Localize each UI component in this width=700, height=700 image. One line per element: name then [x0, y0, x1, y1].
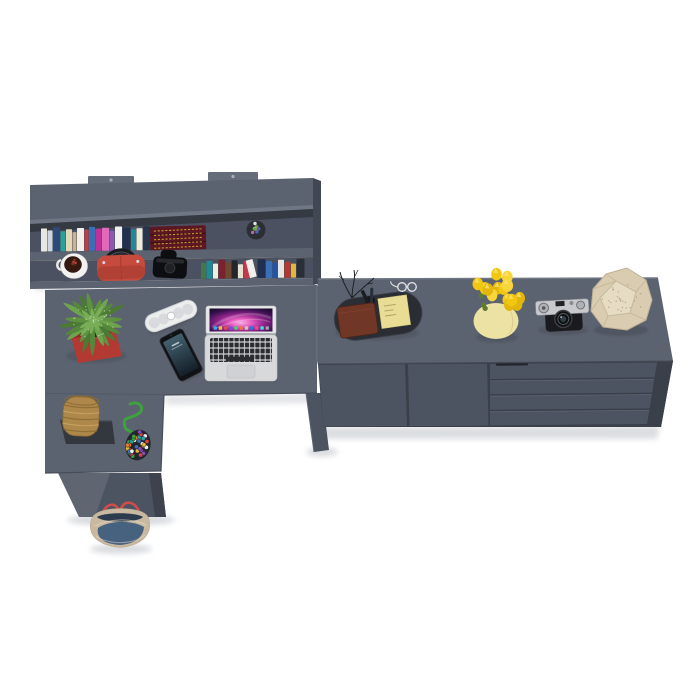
leaf-speckle [78, 309, 79, 310]
antique-book-stack [150, 225, 207, 250]
dock-icon [250, 326, 254, 330]
dock-icon [245, 326, 249, 330]
shelf-end-panel [313, 178, 321, 285]
book-spine [115, 227, 122, 251]
succulent-leaf [257, 227, 260, 230]
leaf-speckle [85, 306, 86, 307]
stone-speckle [602, 298, 604, 300]
leaf-speckle [110, 315, 111, 316]
book-spine [102, 228, 109, 251]
laptop [205, 306, 277, 381]
dock-icon [260, 326, 264, 330]
dock-icon [219, 326, 223, 330]
pen [370, 288, 374, 303]
stone-speckle [622, 300, 624, 302]
succulent-leaf [251, 231, 254, 234]
book-spine [258, 259, 266, 278]
coffee-bean [74, 262, 77, 265]
leaf-speckle [102, 333, 103, 334]
succulent-leaf [253, 227, 256, 230]
leaf-speckle [73, 318, 74, 319]
leaf-speckle [101, 319, 102, 320]
leaf-speckle [106, 314, 107, 315]
stone-speckle [622, 307, 624, 309]
book-spine [110, 231, 115, 251]
screen-dock [214, 326, 270, 330]
wall-shelf [30, 172, 321, 289]
leaf-speckle [100, 334, 101, 335]
leaf-speckle [104, 316, 105, 317]
dock-icon [255, 326, 259, 330]
book-spine [207, 261, 213, 279]
book-spine [96, 229, 102, 251]
leaf-speckle [85, 309, 86, 310]
leaf-speckle [86, 319, 87, 320]
book-spine [273, 263, 278, 278]
leaf-speckle [112, 327, 113, 328]
book-spine [48, 230, 53, 251]
book-spine [285, 262, 291, 278]
book-spine [66, 229, 72, 251]
stone-speckle [636, 296, 638, 298]
book-spine [143, 226, 150, 250]
camera-viewfinder [555, 301, 564, 306]
sideboard-door [319, 364, 407, 426]
coffee-bean [71, 263, 74, 266]
leaf-speckle [109, 310, 110, 311]
laptop-spacebar [226, 357, 254, 361]
book-spine [291, 264, 296, 278]
sideboard-door [408, 364, 489, 426]
book-spine [123, 227, 131, 250]
tulip-greenery [481, 302, 486, 307]
book-spine [61, 231, 66, 251]
mount-knob [231, 175, 234, 178]
stone-speckle [620, 310, 622, 312]
stone-speckle [629, 307, 631, 309]
leather-wallet [337, 302, 379, 338]
stone-speckle [640, 306, 642, 308]
book-spine [297, 259, 305, 278]
book-spine [137, 228, 143, 250]
stone-speckle [634, 300, 636, 302]
book-spine [266, 261, 272, 278]
book-spine [73, 232, 77, 251]
leaf-speckle [98, 320, 99, 321]
dock-icon [214, 326, 218, 330]
stone-speckle [618, 291, 620, 293]
book-spine [219, 260, 226, 279]
leaf-speckle [107, 323, 108, 324]
book-spine [53, 227, 60, 251]
stone-speckle [610, 302, 612, 304]
stone-speckle [627, 284, 629, 286]
furniture-render: Top-down 3D render of a dark gray home-o… [0, 0, 700, 700]
leaf-speckle [89, 318, 90, 319]
sticky-notes [378, 295, 411, 329]
leaf-speckle [93, 317, 94, 318]
case-lens [165, 263, 176, 274]
shelf-succulent [247, 221, 266, 240]
leaf-speckle [94, 309, 95, 310]
leaf-speckle [73, 324, 74, 325]
dock-icon [240, 326, 244, 330]
dock-icon [234, 326, 238, 330]
book-spine [131, 229, 136, 250]
book-spines-upper [41, 226, 150, 251]
coffee-bean [73, 259, 76, 262]
dock-icon [224, 326, 228, 330]
book-spine [85, 230, 89, 251]
succulent-leaf [255, 230, 258, 233]
stone-speckle [625, 302, 627, 304]
stone-speckle [620, 299, 622, 301]
stone-speckle [608, 307, 610, 309]
scene-canvas: Top-down 3D render of a dark gray home-o… [0, 0, 700, 700]
book-spine [201, 263, 206, 279]
book-spine [238, 264, 243, 278]
book-spine [41, 229, 47, 252]
book-spine [226, 263, 231, 279]
leaf-speckle [93, 319, 94, 320]
leaf-speckle [84, 336, 85, 337]
mount-knob [109, 178, 112, 181]
sideboard-shadow [323, 426, 660, 439]
leaf-speckle [93, 322, 94, 323]
stone-speckle [625, 307, 627, 309]
stone-speckle [613, 289, 615, 291]
stone-speckle [620, 300, 622, 302]
book-spine [77, 228, 84, 251]
laptop-trackpad [227, 365, 255, 378]
stone-speckle [608, 300, 610, 302]
leaf-speckle [95, 319, 96, 320]
sideboard-drawer [490, 410, 649, 426]
dock-icon [229, 326, 233, 330]
dock-icon [266, 326, 270, 330]
leaf-speckle [98, 335, 99, 336]
leaf-speckle [90, 316, 91, 317]
book-spine [89, 227, 95, 251]
basket-body-group [62, 395, 100, 437]
stone-speckle [615, 300, 617, 302]
book-spine [213, 264, 218, 279]
stone-speckle [617, 309, 619, 311]
book-spine [278, 260, 284, 278]
succulent-leaf [253, 222, 256, 225]
sideboard [318, 268, 673, 427]
camera-dial [576, 301, 584, 309]
stone-speckle [612, 287, 614, 289]
leaf-speckle [104, 310, 105, 311]
leaf-speckle [88, 329, 89, 330]
book-spine [232, 260, 238, 278]
sideboard-drawer [490, 394, 652, 410]
stone-speckle [617, 296, 619, 298]
stone-speckle [640, 293, 642, 295]
